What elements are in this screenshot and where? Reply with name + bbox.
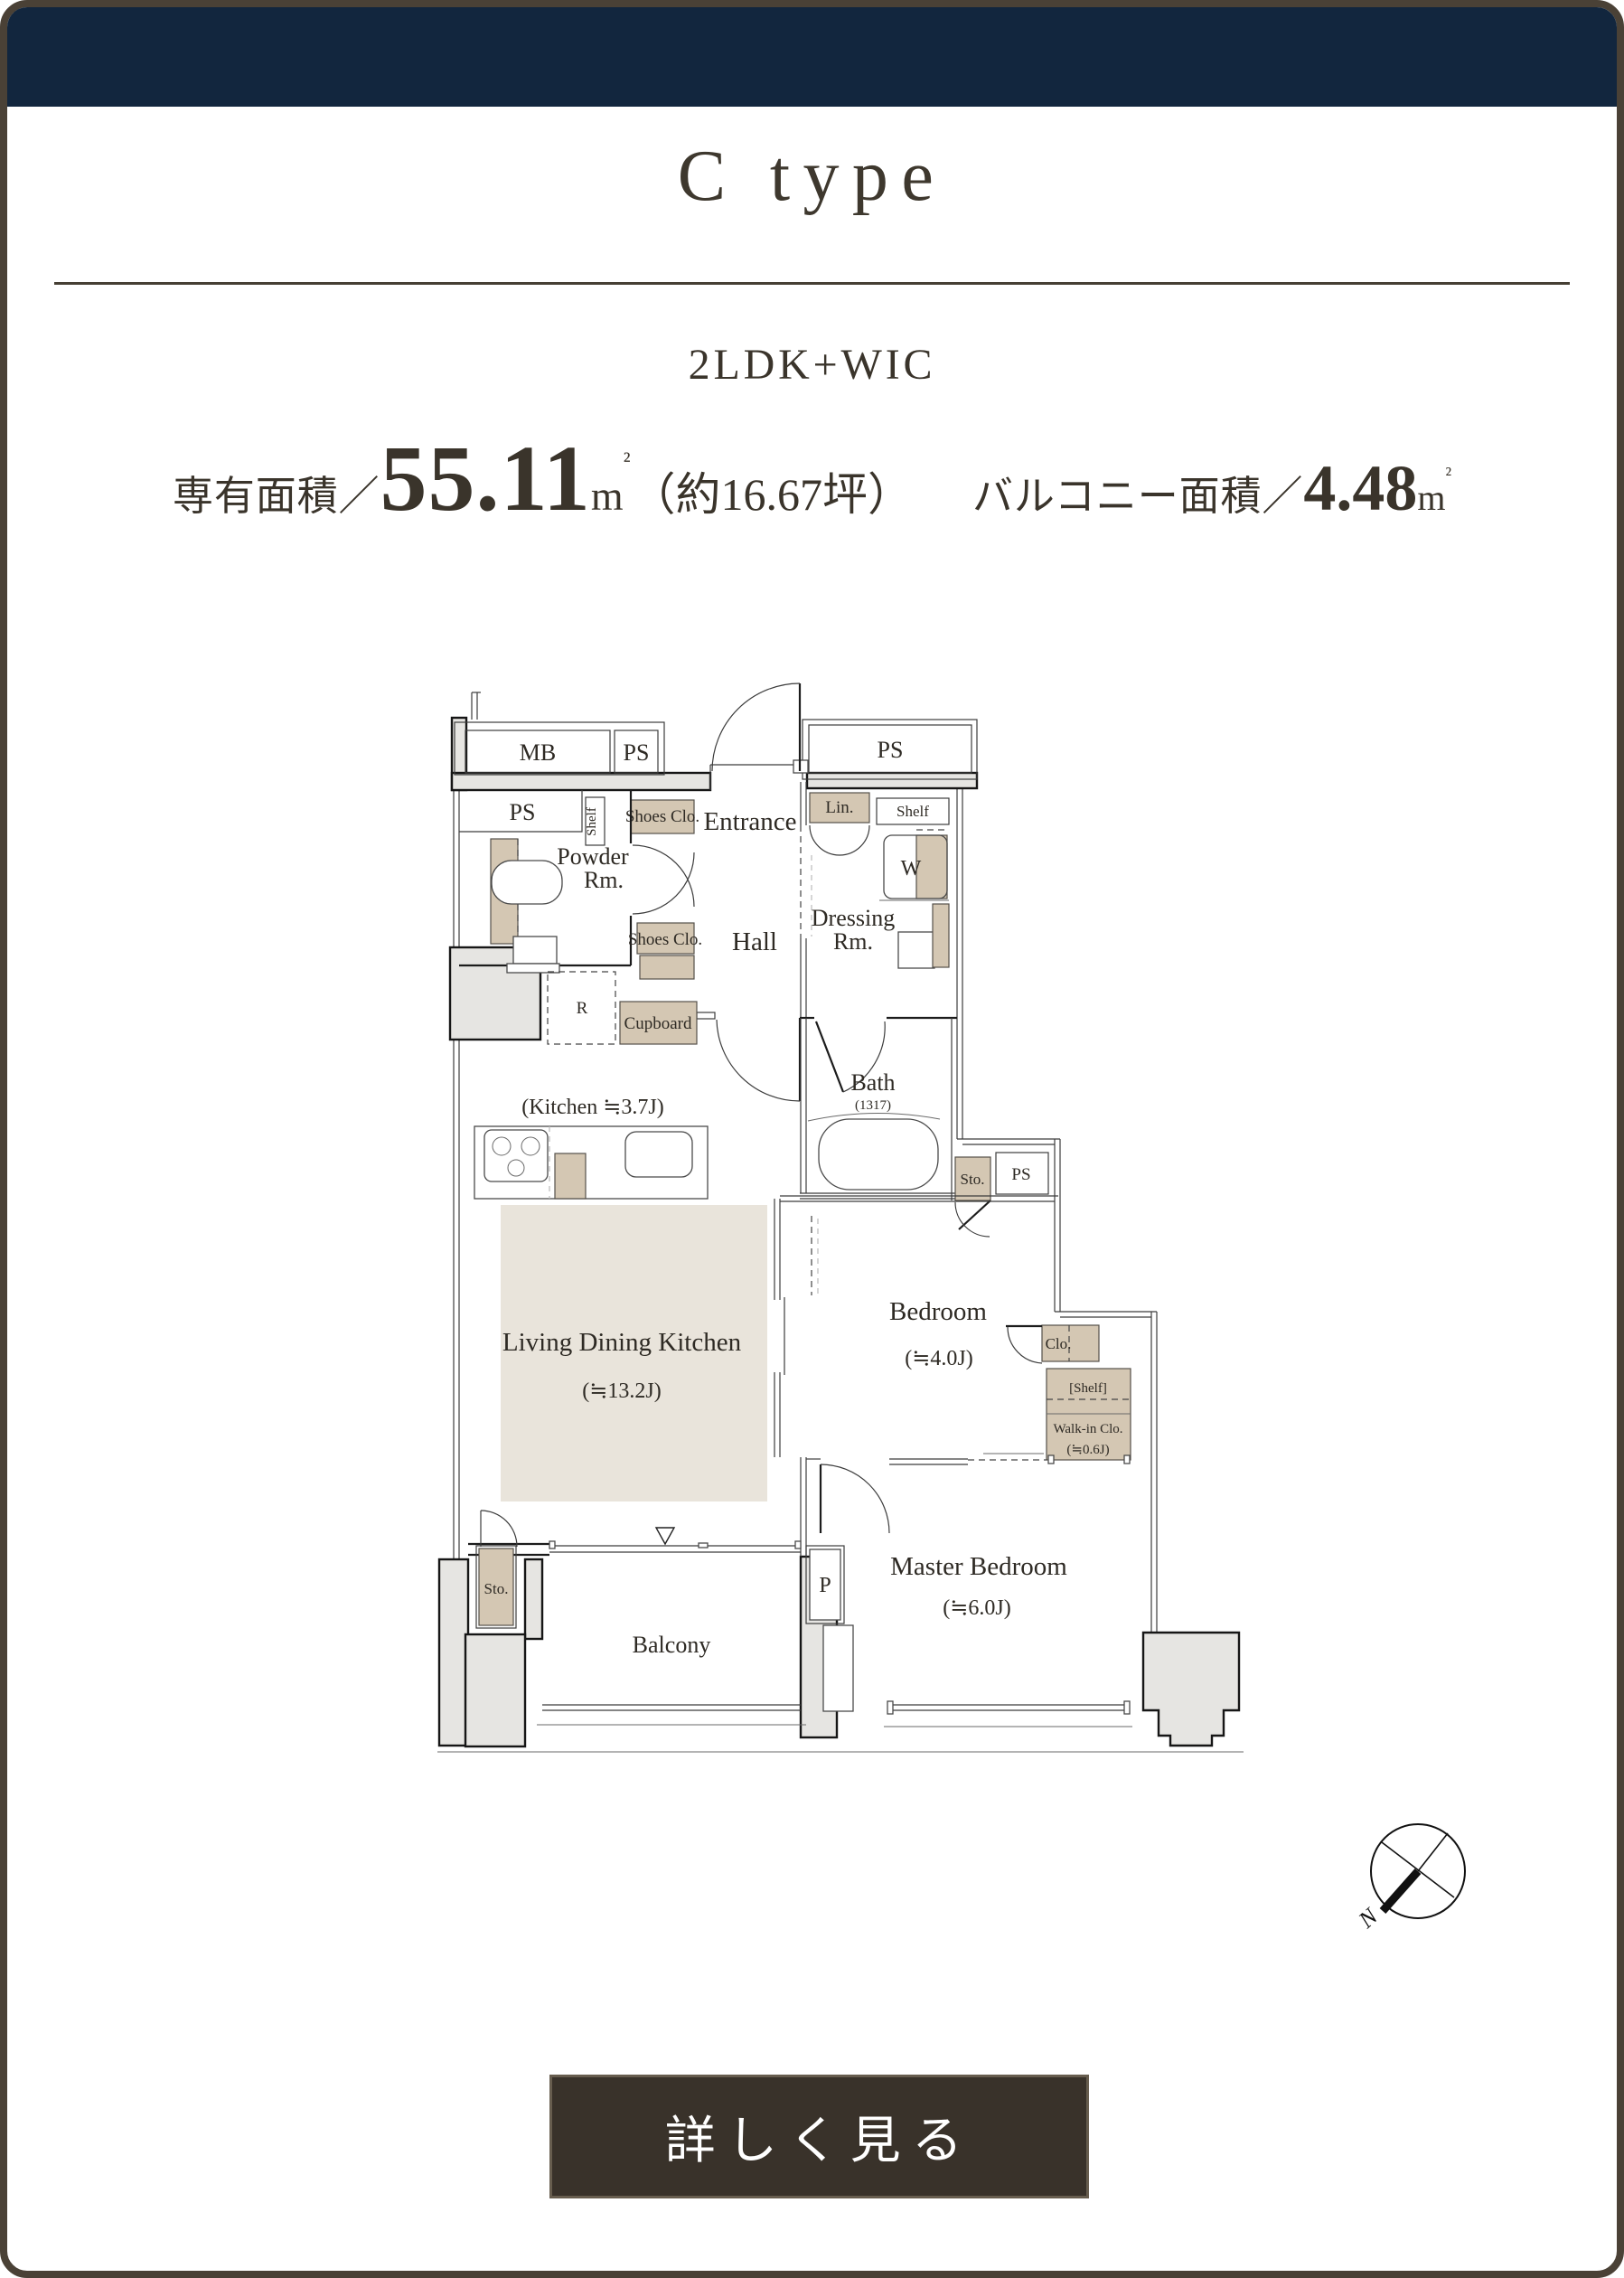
north-needle <box>1383 1871 1418 1911</box>
label-p: P <box>819 1574 831 1597</box>
label-shelf3: [Shelf] <box>1069 1381 1107 1396</box>
area-info: 専有面積／ 55.11 m ² （約16.67坪） バルコニー面積／ 4.48 … <box>7 425 1617 532</box>
label-hall: Hall <box>732 927 777 956</box>
header-band <box>7 7 1617 107</box>
page-title: C type <box>7 136 1617 218</box>
label-shoes1: Shoes Clo. <box>625 807 699 826</box>
plan-card: C type 2LDK+WIC 専有面積／ 55.11 m ² （約16.67坪… <box>0 0 1624 2278</box>
layout-type: 2LDK+WIC <box>7 340 1617 390</box>
entry-marker <box>656 1528 674 1544</box>
label-balcony: Balcony <box>633 1632 711 1658</box>
label-master1: Master Bedroom <box>890 1552 1067 1581</box>
floorplan-page: C type 2LDK+WIC 専有面積／ 55.11 m ² （約16.67坪… <box>0 0 1624 2278</box>
label-wic1: Walk-in Clo. <box>1053 1422 1122 1436</box>
label-bed1: Bedroom <box>889 1297 987 1326</box>
bathroom: Bath (1317) <box>800 1018 957 1200</box>
label-ldk1: Living Dining Kitchen <box>502 1328 742 1357</box>
label-shelf2: Shelf <box>896 803 929 820</box>
exclusive-area-label: 専有面積／ <box>173 463 380 522</box>
label-wic2: (≒0.6J) <box>1066 1443 1109 1457</box>
stove <box>484 1130 548 1181</box>
label-shelf-vertical: Shelf <box>585 807 599 836</box>
pillar-right <box>1143 1633 1239 1746</box>
sink <box>625 1132 692 1177</box>
label-shoes2: Shoes Clo. <box>628 930 702 949</box>
balcony-area-label: バルコニー面積／ <box>972 463 1303 522</box>
dressing-room: Lin. Shelf W Dressing Rm. <box>801 782 949 1018</box>
entrance-door <box>710 683 808 790</box>
label-bed2: (≒4.0J) <box>905 1347 972 1370</box>
label-w: W <box>901 857 922 880</box>
label-dressing1: Dressing <box>812 905 895 931</box>
label-entrance: Entrance <box>703 807 796 836</box>
storage-column: Sto. PS <box>955 1153 1048 1237</box>
label-cupboard: Cupboard <box>624 1014 692 1033</box>
compass: N <box>1352 1806 1488 1951</box>
wash-basin <box>492 861 562 904</box>
label-sto-balcony: Sto. <box>484 1580 509 1597</box>
bathtub <box>819 1119 938 1190</box>
balcony-area-value: 4.48 <box>1303 451 1417 526</box>
exclusive-area-unit-sup: ² <box>624 447 631 475</box>
label-lin: Lin. <box>825 798 853 817</box>
label-powder1: Powder <box>557 843 629 870</box>
label-ps-top: PS <box>624 739 650 766</box>
detail-button[interactable]: 詳しく見る <box>549 2075 1089 2198</box>
label-master2: (≒6.0J) <box>943 1596 1010 1620</box>
label-dressing2: Rm. <box>833 928 873 955</box>
walk-in-closet: [Shelf] Walk-in Clo. (≒0.6J) <box>1047 1369 1131 1464</box>
ldk: Living Dining Kitchen (≒13.2J) <box>501 1205 767 1501</box>
entry-storage: PS Shelf Shoes Clo. Entrance <box>459 790 797 845</box>
floor-plan: MB PS PS PS Shelf Shoes Clo. Entranc <box>423 667 1291 1770</box>
exclusive-area-unit: m <box>591 472 624 520</box>
exclusive-area-value: 55.11 <box>380 425 590 532</box>
label-r: R <box>577 999 588 1018</box>
label-sto-bath: Sto. <box>961 1171 985 1188</box>
label-powder2: Rm. <box>584 867 624 893</box>
balcony-area-unit-sup: ² <box>1445 463 1451 486</box>
label-clo: Clo. <box>1046 1335 1072 1352</box>
label-ldk2: (≒13.2J) <box>582 1379 661 1403</box>
label-bath: Bath <box>850 1069 895 1096</box>
meter-pipe-row: MB PS PS <box>455 720 977 779</box>
label-mb: MB <box>520 739 556 766</box>
label-bath-size: (1317) <box>855 1098 891 1113</box>
balcony-area-unit: m <box>1417 476 1445 519</box>
label-ps-bath: PS <box>1011 1165 1030 1184</box>
exclusive-area-tsubo: （約16.67坪） <box>631 458 914 523</box>
inner-doors <box>717 1018 957 1101</box>
label-ps-room: PS <box>510 799 536 825</box>
title-divider <box>54 282 1570 285</box>
label-kitchen: (Kitchen ≒3.7J) <box>521 1096 663 1119</box>
label-ps-right: PS <box>878 737 904 763</box>
label-north: N <box>1353 1902 1384 1934</box>
toilet-tank <box>513 937 557 964</box>
